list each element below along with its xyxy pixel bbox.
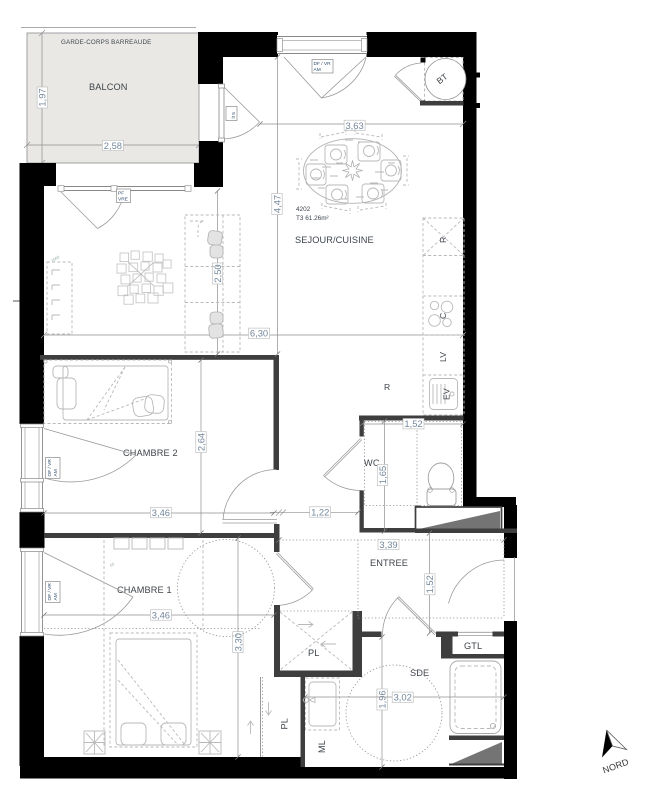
svg-text:lt 5: lt 5 — [231, 112, 237, 119]
svg-text:4,47: 4,47 — [271, 195, 282, 213]
svg-text:BALCON: BALCON — [89, 82, 128, 92]
svg-text:60: 60 — [109, 561, 116, 568]
svg-text:GTL: GTL — [464, 641, 482, 651]
svg-text:AM: AM — [53, 469, 59, 476]
svg-text:1600: 1600 — [50, 254, 61, 263]
svg-text:PL: PL — [280, 718, 290, 729]
svg-text:OF / VR: OF / VR — [47, 459, 53, 477]
svg-text:4202: 4202 — [296, 206, 311, 213]
svg-text:ENTREE: ENTREE — [370, 558, 408, 568]
svg-text:SDE: SDE — [410, 668, 429, 678]
svg-text:3,46: 3,46 — [152, 507, 170, 518]
svg-text:ML: ML — [317, 740, 327, 753]
svg-text:T3 61.26m²: T3 61.26m² — [296, 215, 329, 222]
svg-text:R: R — [384, 382, 390, 392]
svg-text:3,02: 3,02 — [394, 692, 412, 703]
svg-text:AM: AM — [53, 593, 59, 600]
svg-text:2,64: 2,64 — [195, 433, 206, 451]
svg-text:C: C — [438, 313, 448, 319]
svg-text:6,30: 6,30 — [250, 328, 268, 339]
svg-text:OF / VR: OF / VR — [47, 583, 53, 601]
svg-text:1,65: 1,65 — [377, 466, 388, 484]
svg-text:PL: PL — [308, 648, 319, 658]
svg-text:GARDE-CORPS BARREAUDE: GARDE-CORPS BARREAUDE — [61, 39, 152, 46]
svg-text:PF: PF — [118, 191, 124, 197]
svg-text:CHAMBRE 2: CHAMBRE 2 — [123, 448, 178, 458]
svg-text:1,52: 1,52 — [404, 418, 422, 429]
svg-text:1,96: 1,96 — [377, 690, 388, 708]
svg-text:2,50: 2,50 — [212, 264, 223, 282]
svg-text:VRE: VRE — [118, 197, 128, 203]
svg-text:1,22: 1,22 — [311, 506, 329, 517]
svg-text:R: R — [438, 237, 448, 243]
svg-text:3,39: 3,39 — [379, 539, 397, 550]
svg-text:EV: EV — [442, 388, 452, 400]
svg-text:3,46: 3,46 — [152, 609, 170, 620]
svg-text:1,97: 1,97 — [37, 88, 48, 106]
svg-text:LV: LV — [438, 352, 448, 362]
svg-text:1,52: 1,52 — [424, 575, 435, 593]
svg-text:DF / VR: DF / VR — [314, 61, 332, 67]
svg-text:AM: AM — [314, 67, 321, 73]
svg-text:NORD: NORD — [601, 757, 630, 776]
svg-text:SEJOUR/CUISINE: SEJOUR/CUISINE — [295, 235, 374, 245]
svg-text:2,58: 2,58 — [104, 140, 122, 151]
